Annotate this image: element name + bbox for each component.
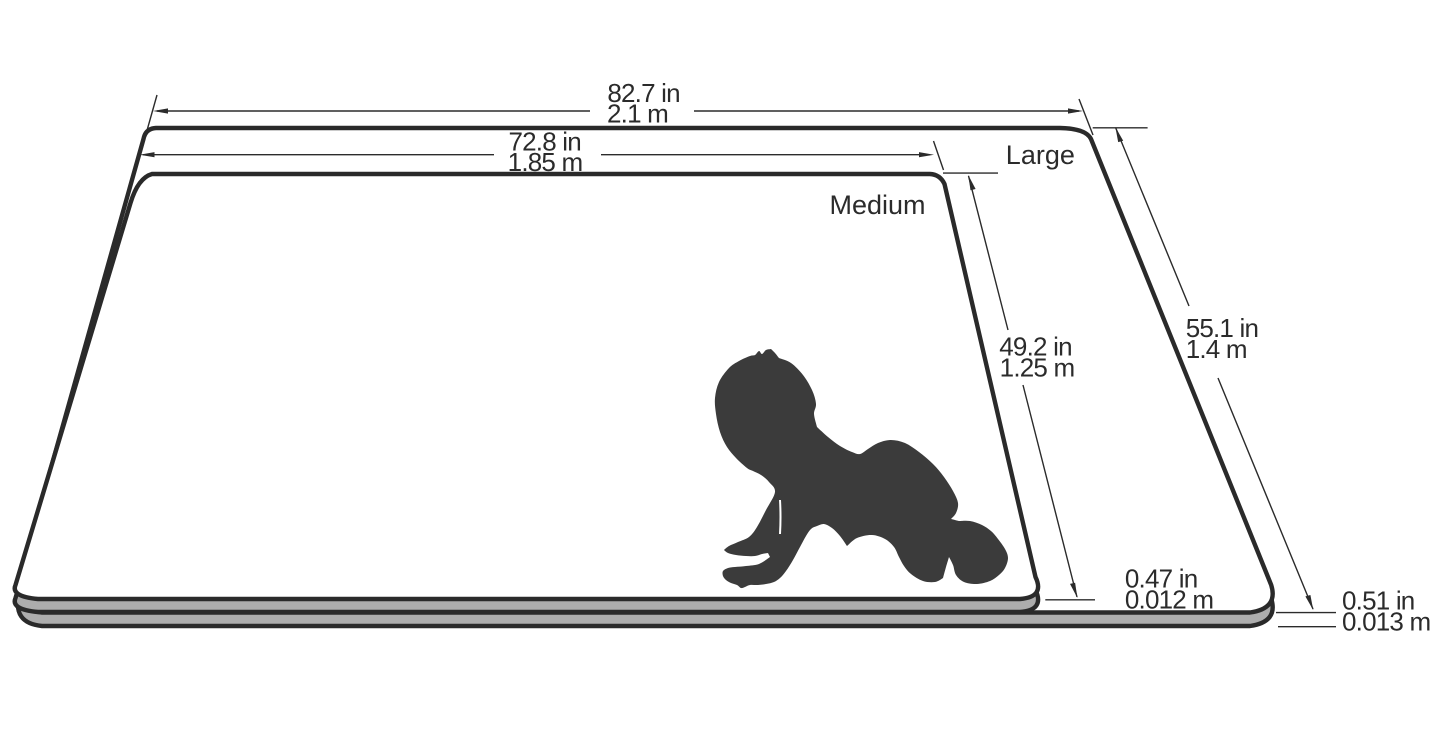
- svg-text:0.013 m: 0.013 m: [1342, 606, 1430, 636]
- svg-text:0.012 m: 0.012 m: [1125, 585, 1213, 615]
- svg-text:1.25 m: 1.25 m: [1000, 353, 1075, 383]
- svg-text:2.1 m: 2.1 m: [607, 98, 668, 128]
- svg-text:1.85 m: 1.85 m: [508, 147, 583, 177]
- svg-text:1.4 m: 1.4 m: [1186, 334, 1247, 364]
- svg-text:Medium: Medium: [830, 190, 926, 220]
- svg-text:Large: Large: [1006, 140, 1075, 170]
